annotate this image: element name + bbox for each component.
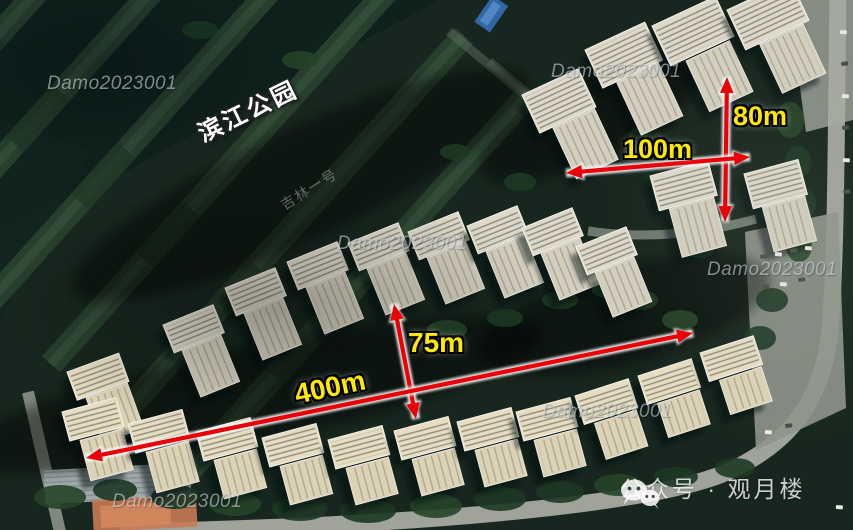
arrow-75m <box>389 304 422 419</box>
measure-label-75m: 75m <box>408 329 464 357</box>
arrow-400m <box>86 328 693 463</box>
measure-label-80m: 80m <box>733 103 787 130</box>
wechat-icon <box>620 478 662 510</box>
measurement-arrows-overlay <box>0 0 853 530</box>
annotated-satellite-screenshot: Damo2023001 Damo2023001 Damo2023001 Damo… <box>0 0 853 530</box>
measure-label-100m: 100m <box>623 136 692 163</box>
arrow-80m <box>716 77 736 222</box>
wechat-official-account-watermark: 公众号 · 观月楼 <box>620 478 805 501</box>
